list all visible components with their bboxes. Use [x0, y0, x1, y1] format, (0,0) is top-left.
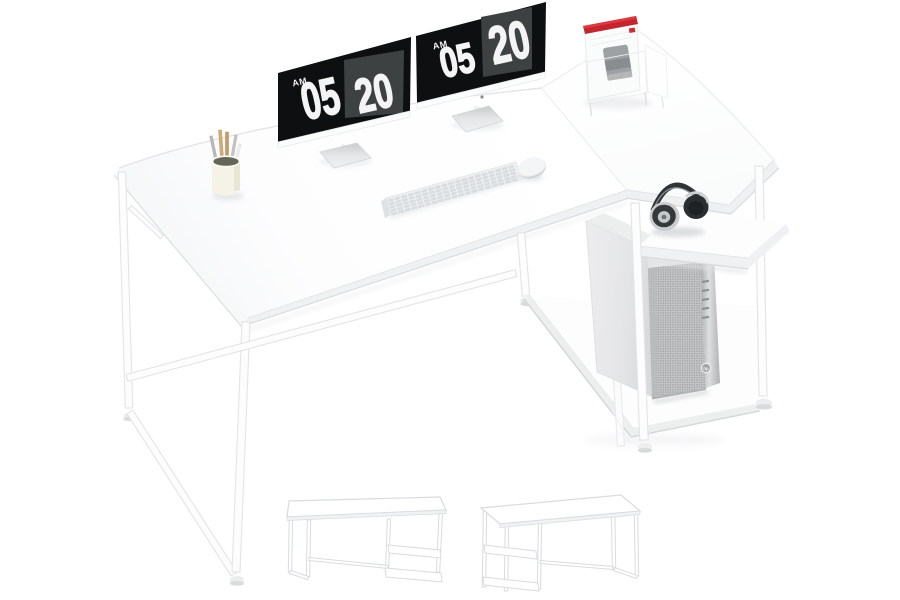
svg-text:hp: hp	[703, 366, 709, 371]
